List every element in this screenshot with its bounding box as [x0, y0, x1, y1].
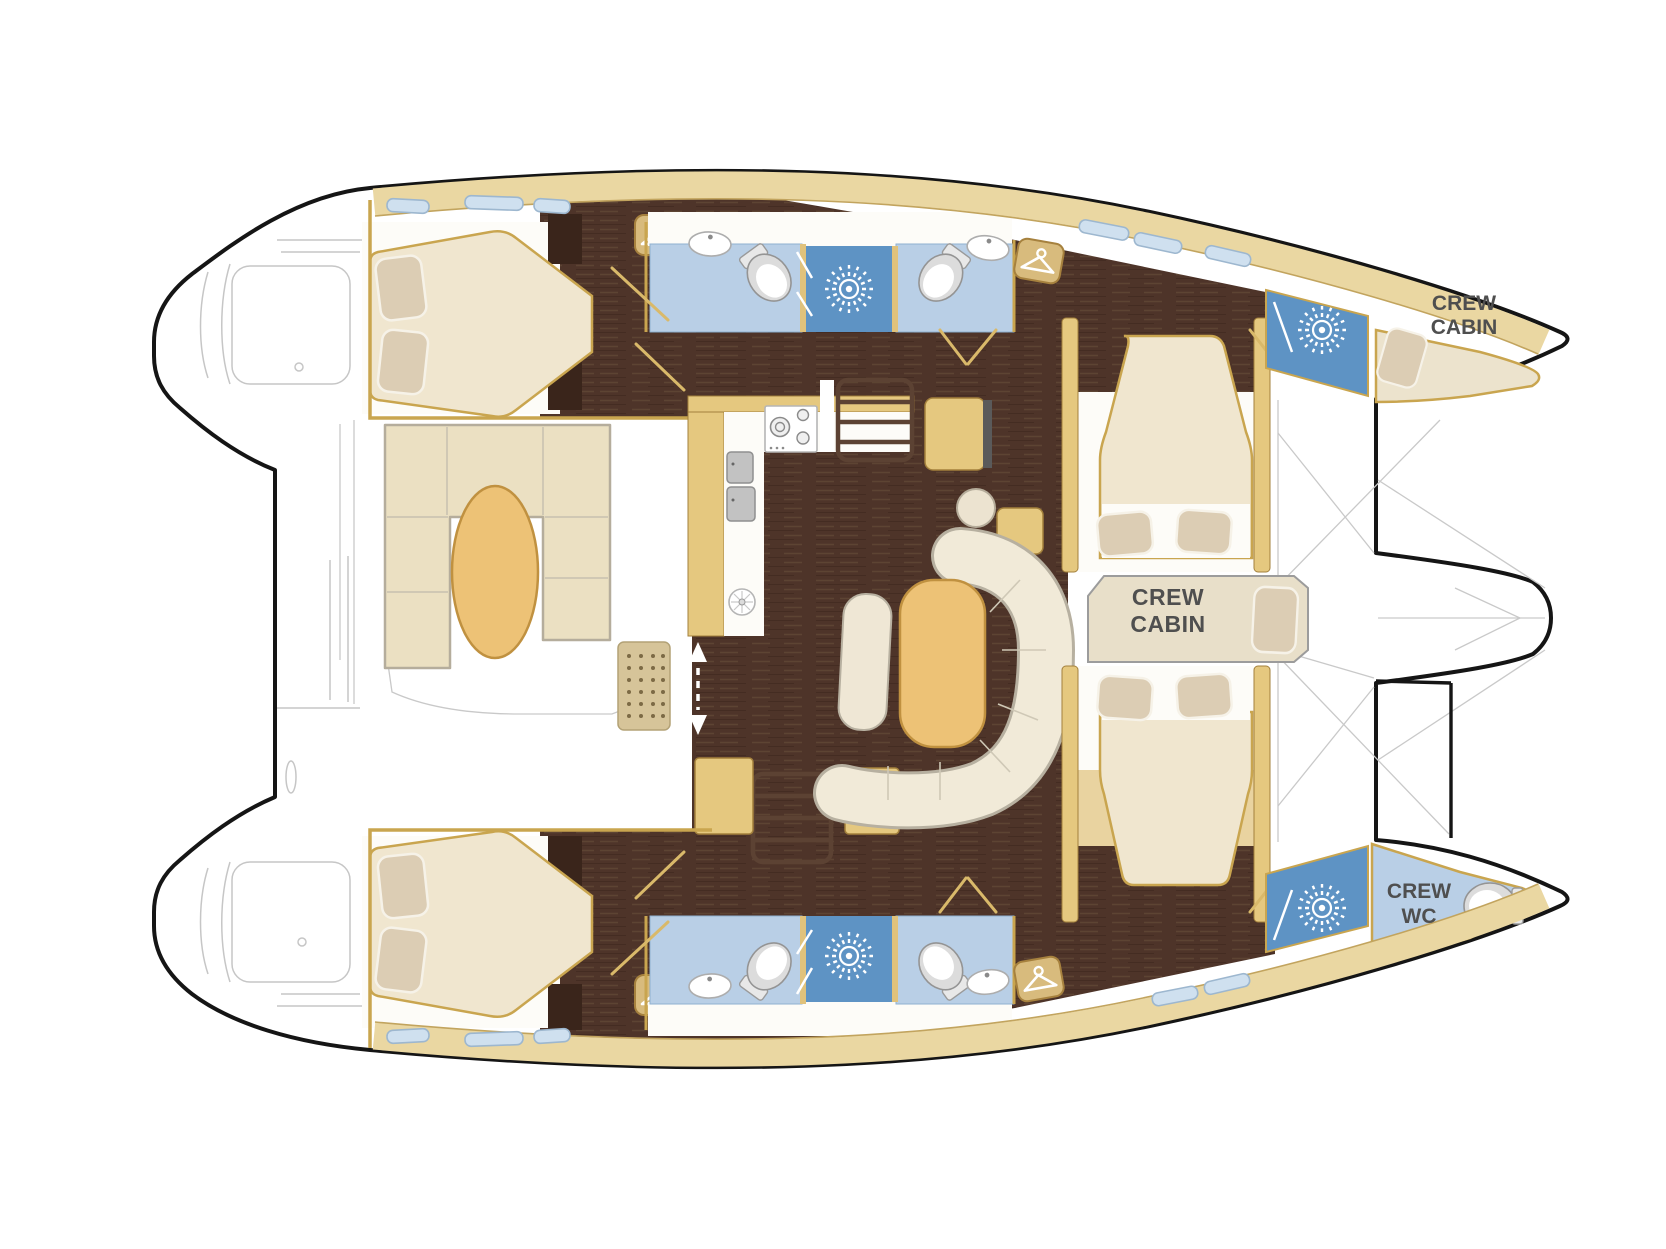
hull-window	[465, 1031, 523, 1046]
pillow	[374, 926, 427, 993]
label-crew-cabin-bow: CREW CABIN	[1408, 292, 1520, 340]
fridge	[727, 452, 753, 483]
hull-window	[387, 1028, 430, 1043]
label-line: CREW	[1090, 584, 1246, 611]
galley-sink-icon	[729, 589, 755, 615]
hull-window	[387, 198, 430, 213]
saloon-chair	[837, 593, 892, 731]
label-line: CABIN	[1090, 611, 1246, 638]
hanger-icon	[1013, 237, 1065, 284]
floorplan-drawing	[0, 0, 1666, 1249]
fridge	[727, 487, 755, 521]
shower-starburst-icon	[825, 932, 873, 980]
shower-starburst-icon	[1298, 306, 1346, 354]
pillow	[374, 254, 427, 321]
hull-window	[534, 1028, 571, 1043]
hanger-icon	[1013, 955, 1065, 1002]
hull-window	[534, 198, 571, 213]
pillow	[1251, 586, 1298, 653]
pillow	[377, 853, 429, 919]
shower-starburst-icon	[1298, 884, 1346, 932]
bar-stool	[957, 489, 995, 527]
pillow	[377, 329, 429, 395]
stove-icon	[765, 406, 817, 452]
nav-counter	[925, 398, 985, 470]
pillow	[1176, 509, 1233, 555]
shower-starburst-icon	[825, 265, 873, 313]
label-line: WC	[1366, 904, 1472, 929]
double-bed	[1100, 712, 1252, 885]
label-line: CREW	[1408, 292, 1520, 316]
catamaran-floorplan: CREW CABIN CREW CABIN CREW WC	[0, 0, 1666, 1249]
label-line: CABIN	[1408, 316, 1520, 340]
pillow	[1176, 673, 1233, 719]
saloon-table	[900, 580, 985, 747]
label-crew-cabin-mid: CREW CABIN	[1090, 584, 1246, 638]
vent-grid-icon	[618, 642, 670, 730]
cabinet	[695, 758, 753, 834]
pillow	[1096, 511, 1153, 558]
pillow	[1097, 675, 1154, 721]
label-crew-wc: CREW WC	[1366, 879, 1472, 929]
hull-window	[465, 195, 523, 210]
bow-beam-structure	[1376, 681, 1451, 838]
cockpit-table	[452, 486, 538, 658]
bathrooms-top	[646, 212, 1065, 332]
label-line: CREW	[1366, 879, 1472, 904]
bathrooms-bottom	[646, 916, 1065, 1036]
